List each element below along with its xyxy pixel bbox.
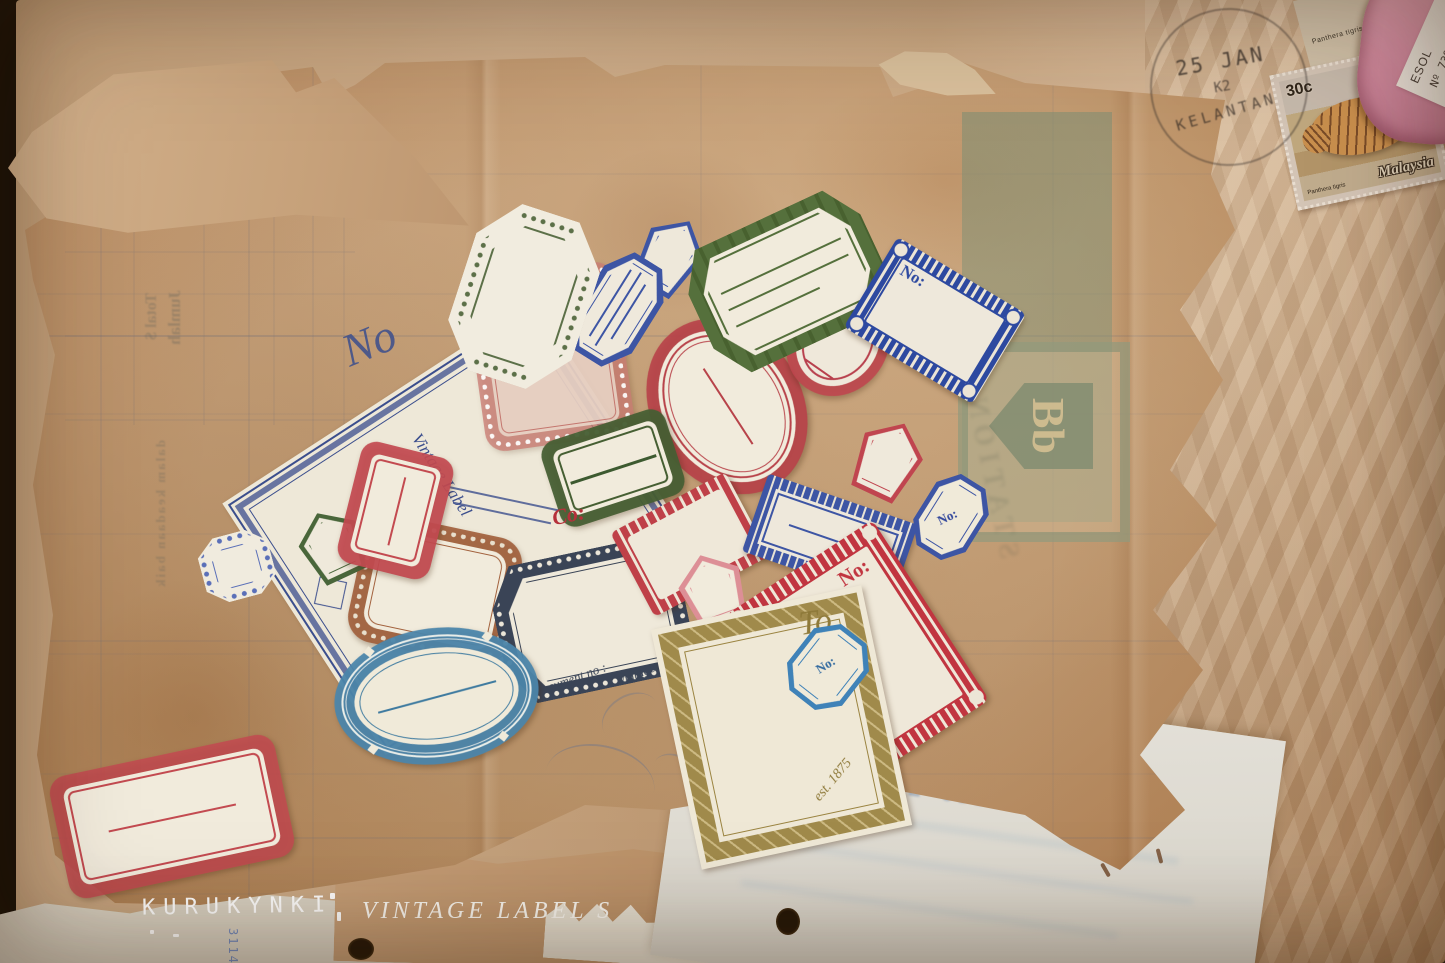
stamp-species-text: Panthera tigris	[1307, 182, 1346, 196]
watermark-speck	[330, 893, 335, 899]
watermark-speck	[150, 930, 154, 934]
ghost-text-total: Total $	[143, 293, 161, 340]
bb-logo-text: Bb	[1022, 383, 1075, 469]
postmark-state: KELANTAN	[1174, 89, 1279, 135]
watermark-brand: KURUKYNKI	[142, 892, 334, 920]
stamp-species-text: Panthera tigris	[1311, 25, 1364, 45]
watermark-speck	[173, 934, 179, 937]
receipt-ghost-line	[740, 879, 1117, 940]
ghost-text-malay: dalam keadaan baik	[153, 440, 169, 589]
stamp-country: Malaysia	[1377, 154, 1436, 182]
postmark-office: K2	[1213, 78, 1232, 97]
tape-label-band: ESOL Nº 739	[1396, 0, 1445, 108]
doc-number-text: 3114	[226, 928, 240, 963]
punch-hole	[348, 938, 374, 960]
punch-hole	[776, 908, 800, 935]
postmark-date: 25 JAN	[1174, 41, 1267, 80]
ghost-text-jumlah: Jumlah	[165, 290, 185, 345]
watermark-series: VINTAGE LABEL S	[362, 898, 613, 925]
bb-shield: Bb	[989, 383, 1093, 469]
photo-canvas: 3114 03-292 0990 Bb Jumlah Total	[0, 0, 1445, 963]
corner-dot	[859, 522, 880, 543]
watermark-speck	[337, 912, 341, 921]
